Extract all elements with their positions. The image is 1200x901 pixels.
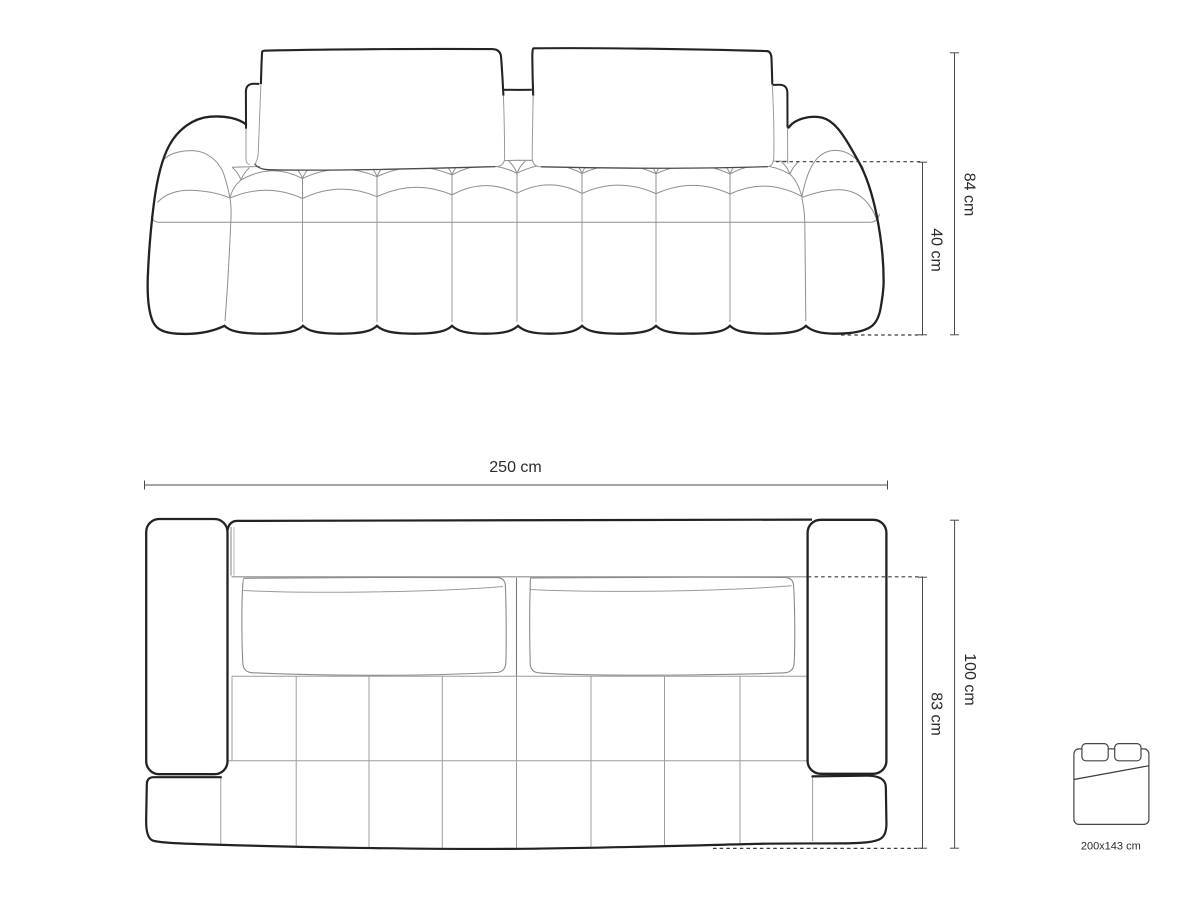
svg-text:100 cm: 100 cm bbox=[961, 653, 978, 705]
svg-text:83 cm: 83 cm bbox=[928, 692, 945, 736]
svg-text:84 cm: 84 cm bbox=[960, 173, 977, 217]
svg-text:250 cm: 250 cm bbox=[489, 459, 541, 476]
svg-text:40 cm: 40 cm bbox=[927, 228, 944, 272]
svg-text:200x143 cm: 200x143 cm bbox=[1081, 841, 1141, 853]
